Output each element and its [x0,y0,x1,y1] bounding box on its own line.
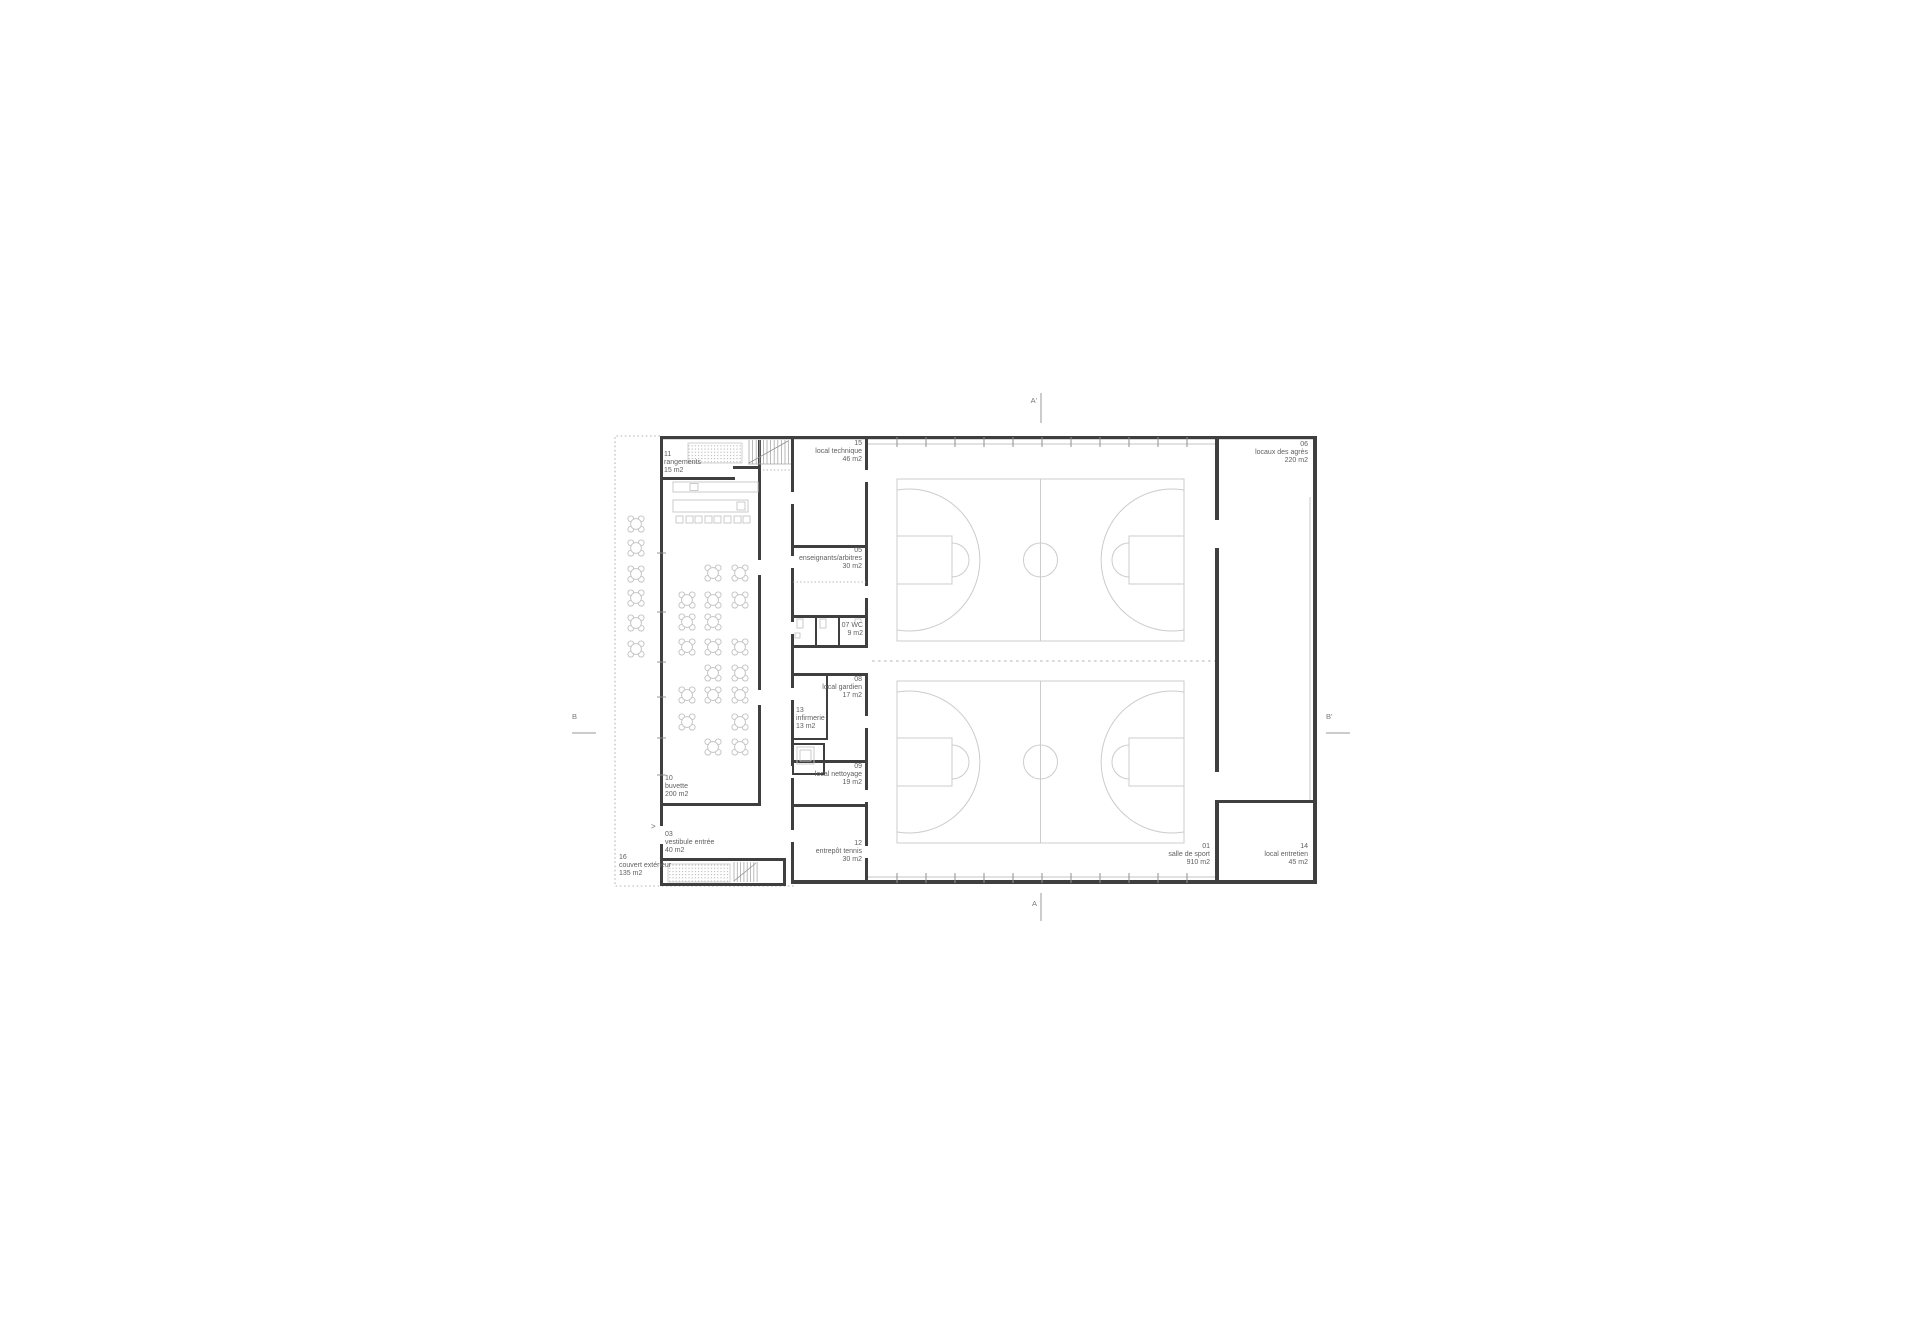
buvette-counter [673,482,758,512]
structural-ticks [897,437,1187,883]
room-label-local-technique: 15 local technique 46 m2 [815,440,862,464]
room-label-local-nettoyage: 09 local nettoyage 19 m2 [815,763,862,787]
room-label-wc: 07 WC 9 m2 [841,622,864,638]
basketball-court-south [897,681,1184,843]
section-marker-b-prime: B' [1326,713,1332,721]
section-marker-a: A [1032,900,1037,908]
room-label-entrepot-tennis: 12 entrepôt tennis 30 m2 [816,840,862,864]
room-label-rangements: 11 rangements 15 m2 [664,451,701,475]
stair-entrance [734,862,757,882]
stair-north [748,440,791,464]
room-label-vestibule-entree: 03 vestibule entrée 40 m2 [665,831,714,855]
room-label-local-gardien: 08 local gardien 17 m2 [822,676,862,700]
room-label-buvette: 10 buvette 200 m2 [665,775,688,799]
floor-plan-canvas: 11 rangements 15 m2 15 local technique 4… [0,0,1920,1323]
room-label-locaux-des-agres: 06 locaux des agrès 220 m2 [1255,441,1308,465]
room-label-infirmerie: 13 infirmerie 13 m2 [796,707,825,731]
room-label-enseignants-arbitres: 05 enseignants/arbitres 30 m2 [799,547,862,571]
buvette-stools [676,516,750,523]
section-marker-b: B [572,713,577,721]
buvette-tables [679,565,748,755]
floor-plan-drawing [0,0,1920,1323]
entrance-direction-marker: > [651,823,656,831]
room-label-couvert-exterieur: 16 couvert extérieur 135 m2 [619,854,671,878]
section-marker-a-prime: A' [1031,397,1037,405]
room-label-local-entretien: 14 local entretien 45 m2 [1264,843,1308,867]
room-label-salle-de-sport: 01 salle de sport 910 m2 [1168,843,1210,867]
basketball-court-north [897,479,1184,641]
terrace-tables [628,516,644,657]
